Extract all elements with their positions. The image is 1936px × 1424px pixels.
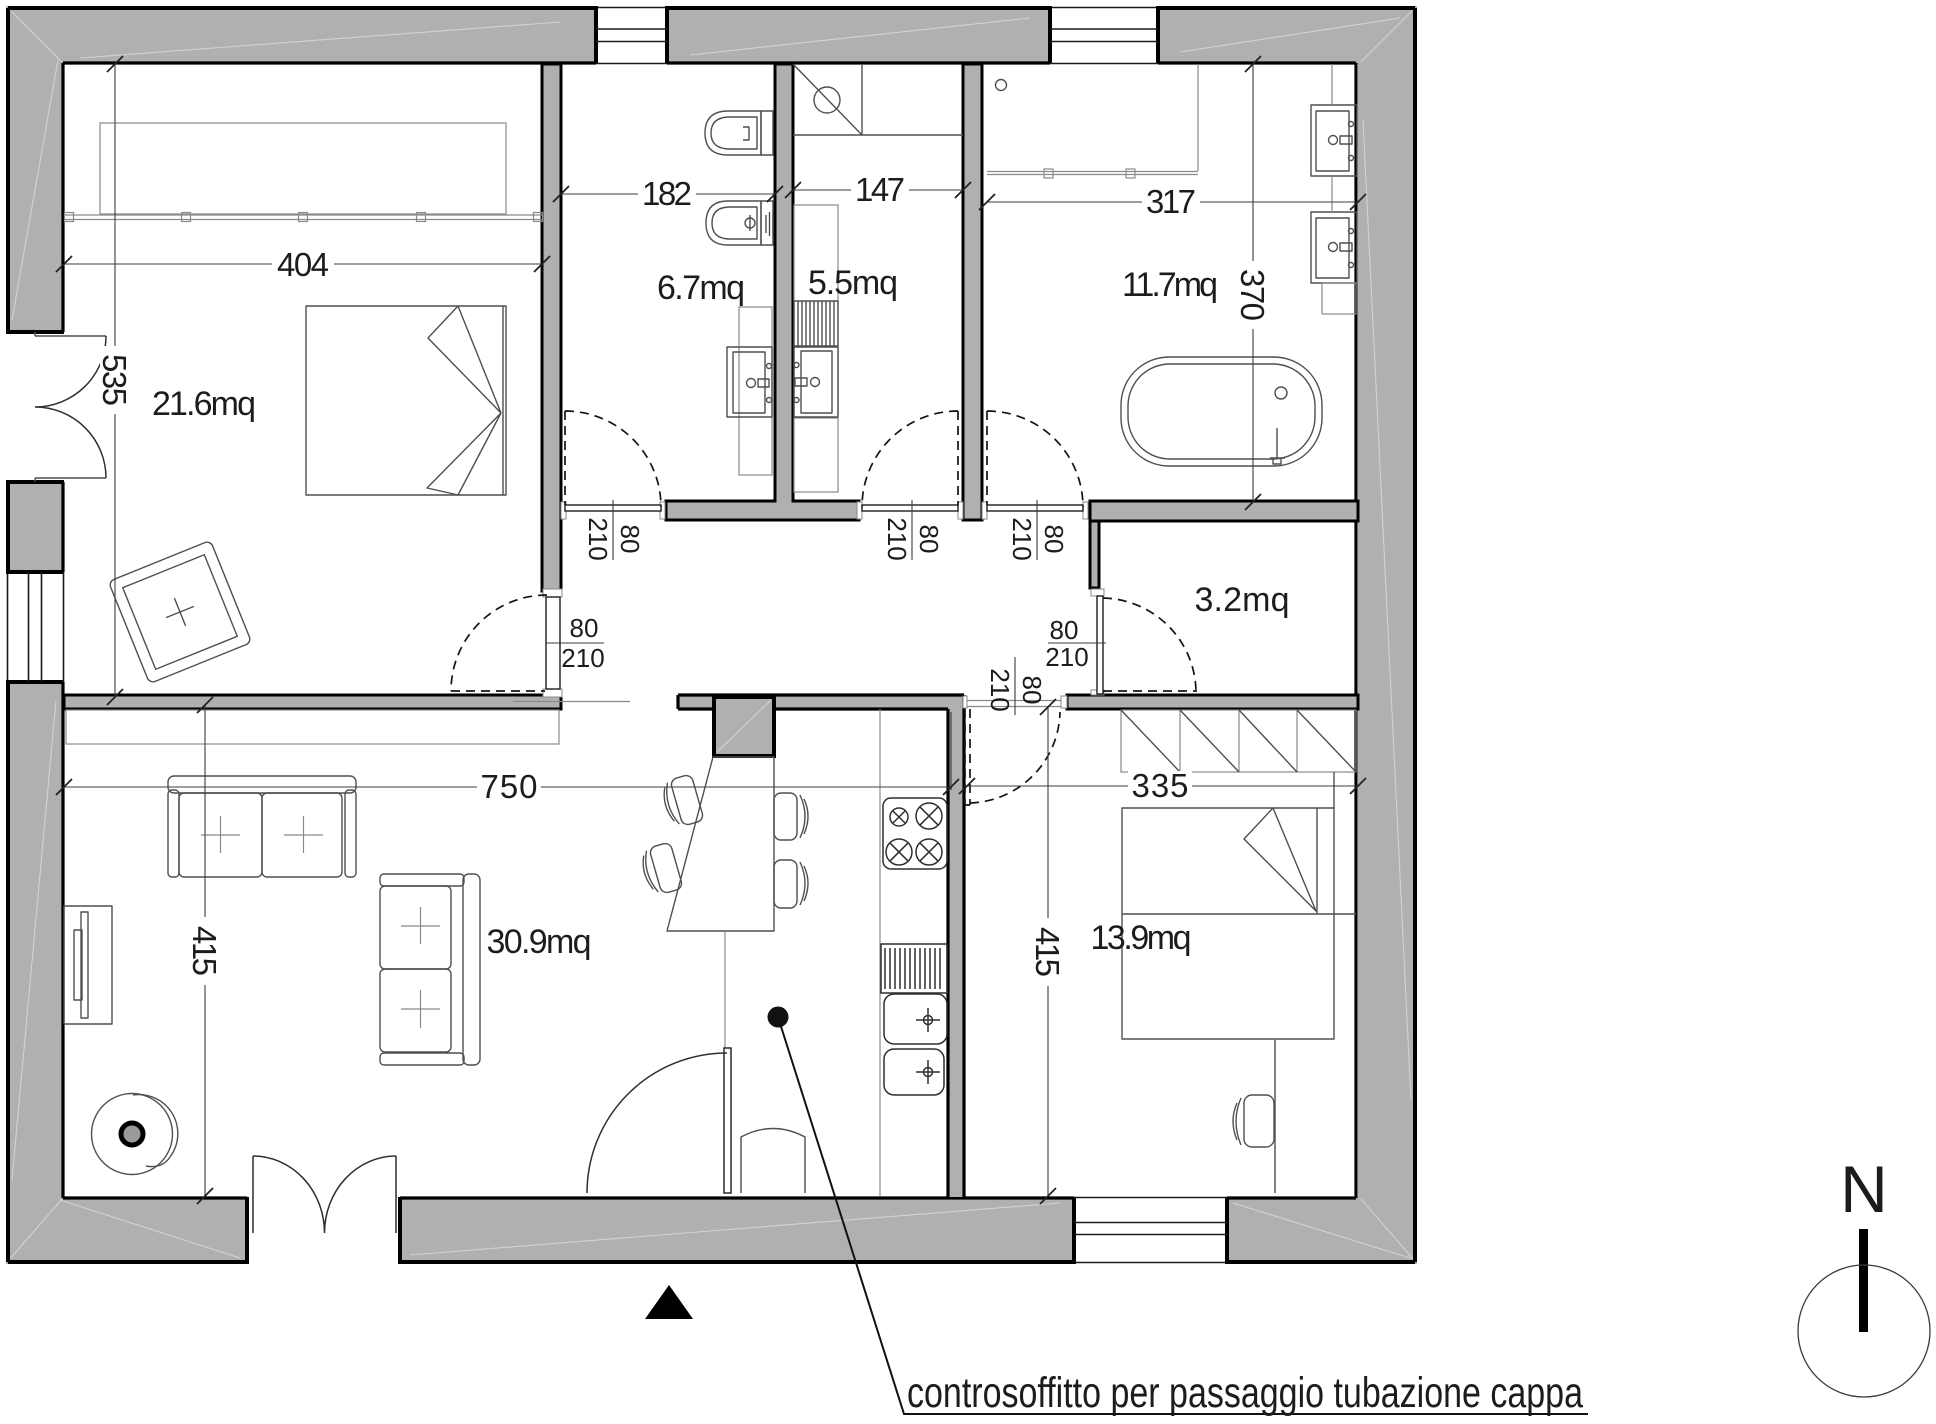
svg-text:80: 80 xyxy=(1050,615,1079,645)
svg-text:30.9mq: 30.9mq xyxy=(487,923,592,961)
svg-text:5.5mq: 5.5mq xyxy=(808,264,898,302)
svg-text:80: 80 xyxy=(615,525,645,554)
svg-text:11.7mq: 11.7mq xyxy=(1122,266,1218,304)
svg-text:210: 210 xyxy=(985,668,1015,711)
svg-text:147: 147 xyxy=(855,171,905,208)
svg-text:controsoffitto per passaggio t: controsoffitto per passaggio tubazione c… xyxy=(907,1369,1583,1417)
svg-text:21.6mq: 21.6mq xyxy=(152,385,256,423)
svg-text:80: 80 xyxy=(570,613,599,643)
svg-text:210: 210 xyxy=(583,517,613,560)
svg-text:80: 80 xyxy=(914,525,944,554)
svg-text:80: 80 xyxy=(1017,676,1047,705)
svg-text:80: 80 xyxy=(1039,525,1069,554)
svg-text:6.7mq: 6.7mq xyxy=(657,269,745,307)
svg-text:210: 210 xyxy=(1007,517,1037,560)
svg-text:210: 210 xyxy=(1045,642,1088,672)
svg-text:415: 415 xyxy=(1029,927,1066,977)
svg-text:13.9mq: 13.9mq xyxy=(1091,919,1192,957)
svg-text:750: 750 xyxy=(481,768,538,805)
svg-text:404: 404 xyxy=(277,246,329,283)
svg-text:535: 535 xyxy=(96,354,133,406)
svg-text:N: N xyxy=(1840,1152,1888,1226)
svg-text:210: 210 xyxy=(561,643,604,673)
svg-text:210: 210 xyxy=(882,517,912,560)
svg-text:317: 317 xyxy=(1146,183,1196,220)
svg-text:370: 370 xyxy=(1234,269,1271,321)
svg-text:182: 182 xyxy=(642,175,692,212)
svg-text:415: 415 xyxy=(186,926,223,976)
svg-text:3.2mq: 3.2mq xyxy=(1195,581,1290,619)
svg-text:335: 335 xyxy=(1132,767,1189,804)
